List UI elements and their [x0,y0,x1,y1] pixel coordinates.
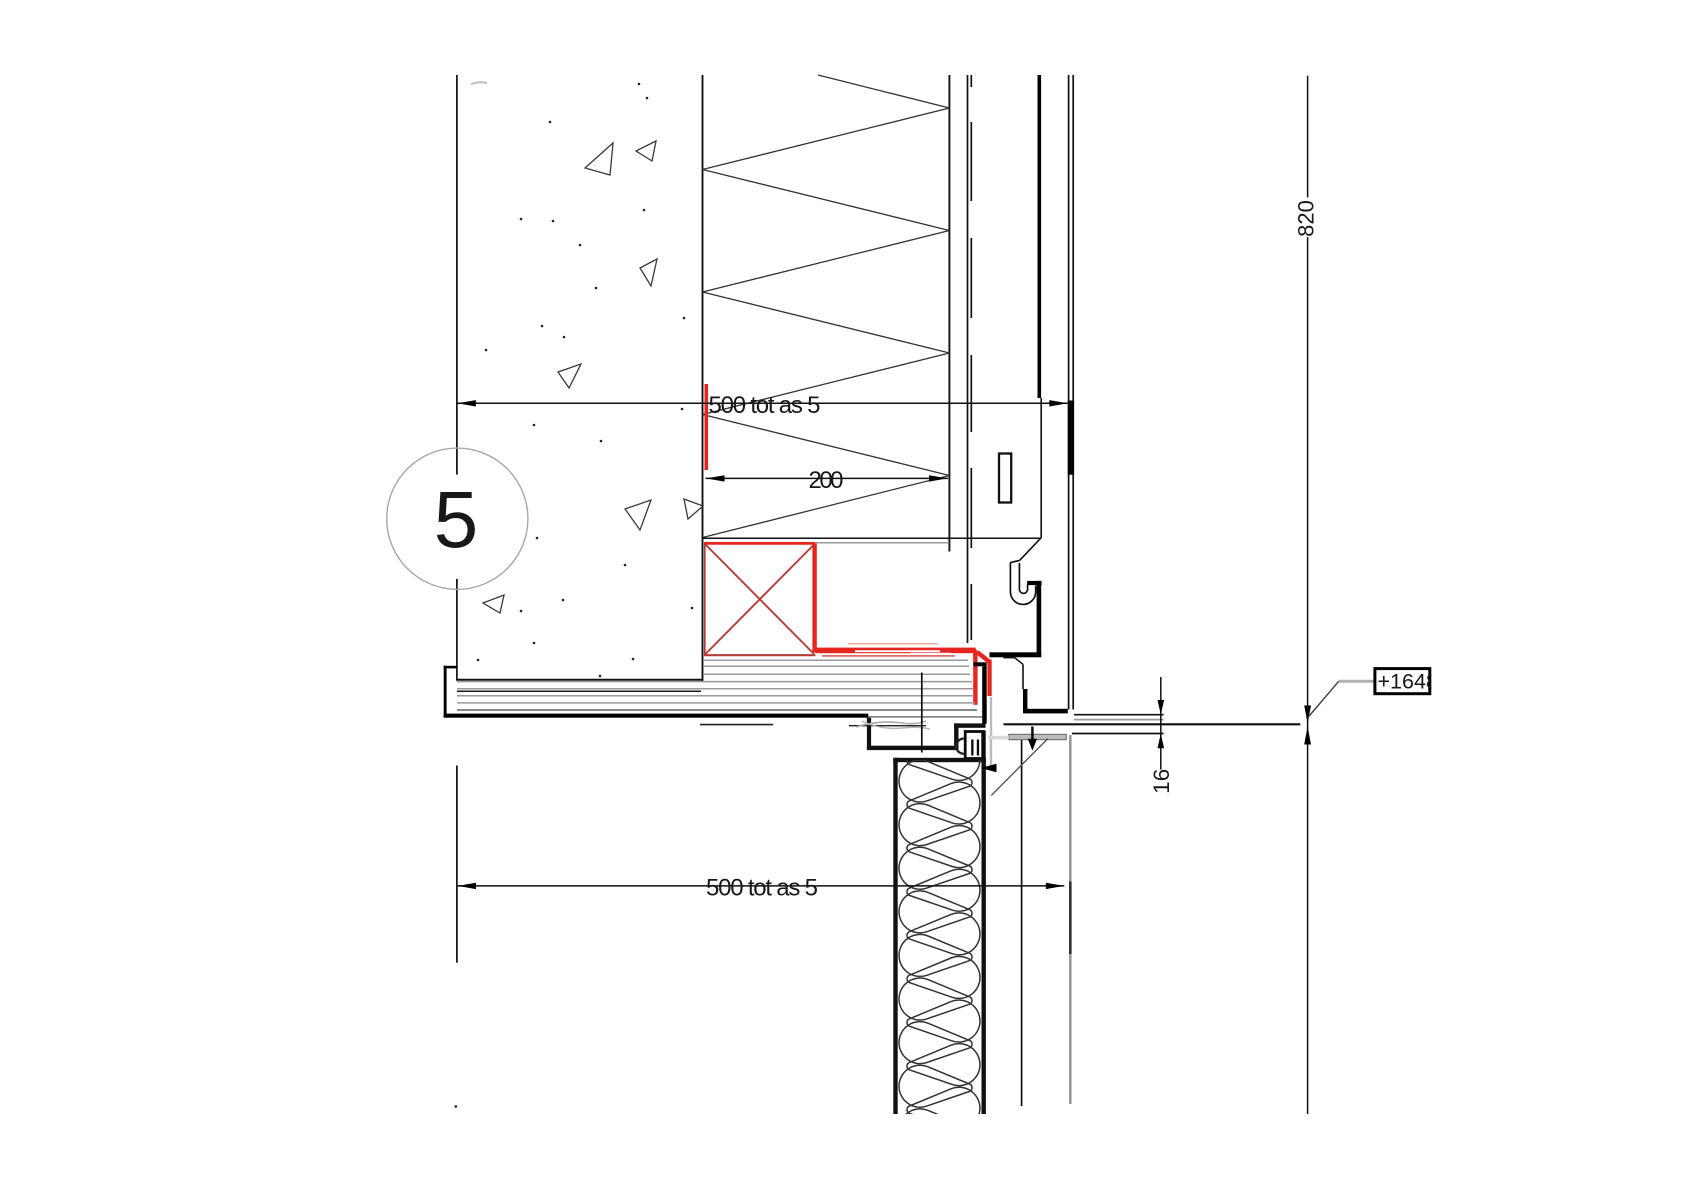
svg-text:+1648: +1648 [1378,670,1438,694]
svg-text:820: 820 [1294,200,1319,237]
svg-text:200: 200 [809,467,844,494]
svg-text:5: 5 [434,475,479,564]
svg-text:500 tot as 5: 500 tot as 5 [706,874,818,901]
svg-text:16: 16 [1149,769,1174,794]
svg-text:500 tot as 5: 500 tot as 5 [709,392,821,419]
